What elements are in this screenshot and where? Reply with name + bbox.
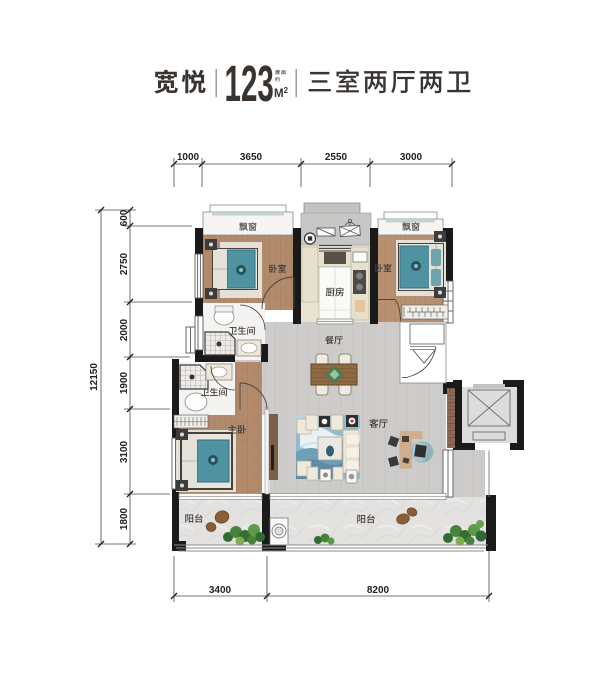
svg-text:1000: 1000 xyxy=(177,152,200,163)
svg-text:600: 600 xyxy=(119,209,130,226)
svg-text:123: 123 xyxy=(225,55,274,112)
svg-text:8200: 8200 xyxy=(367,585,390,596)
svg-text:12150: 12150 xyxy=(89,363,100,391)
svg-text:1900: 1900 xyxy=(119,371,130,394)
svg-text:3100: 3100 xyxy=(119,440,130,463)
svg-text:2750: 2750 xyxy=(119,252,130,275)
svg-text:2000: 2000 xyxy=(119,318,130,341)
svg-text:1800: 1800 xyxy=(119,507,130,530)
svg-text:2550: 2550 xyxy=(325,152,348,163)
svg-text:3400: 3400 xyxy=(209,585,232,596)
svg-text:3000: 3000 xyxy=(400,152,423,163)
svg-text:3650: 3650 xyxy=(240,152,263,163)
svg-text:M2: M2 xyxy=(274,86,289,100)
